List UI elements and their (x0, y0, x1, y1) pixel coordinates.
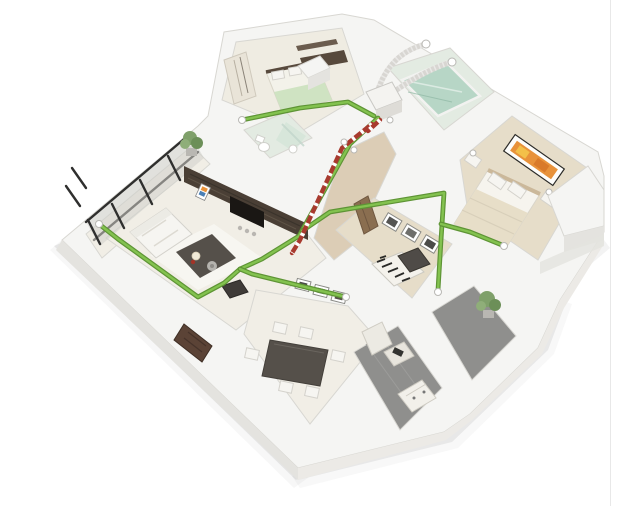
basin (289, 145, 297, 153)
duct-valve (351, 147, 357, 153)
floor-plan-scene: 3D cutaway apartment floor plan with gre… (0, 0, 641, 506)
duct-valve (341, 139, 347, 145)
wall-collar (387, 117, 393, 123)
floor-plan-render: 3D cutaway apartment floor plan with gre… (0, 0, 641, 506)
supply-diffuser (343, 294, 350, 301)
bowl (191, 260, 195, 264)
supply-diffuser (96, 221, 103, 228)
supply-diffuser (239, 117, 246, 124)
toilet (259, 143, 270, 152)
supply-diffuser (501, 243, 508, 250)
plate (192, 252, 200, 260)
supply-diffuser (435, 289, 442, 296)
